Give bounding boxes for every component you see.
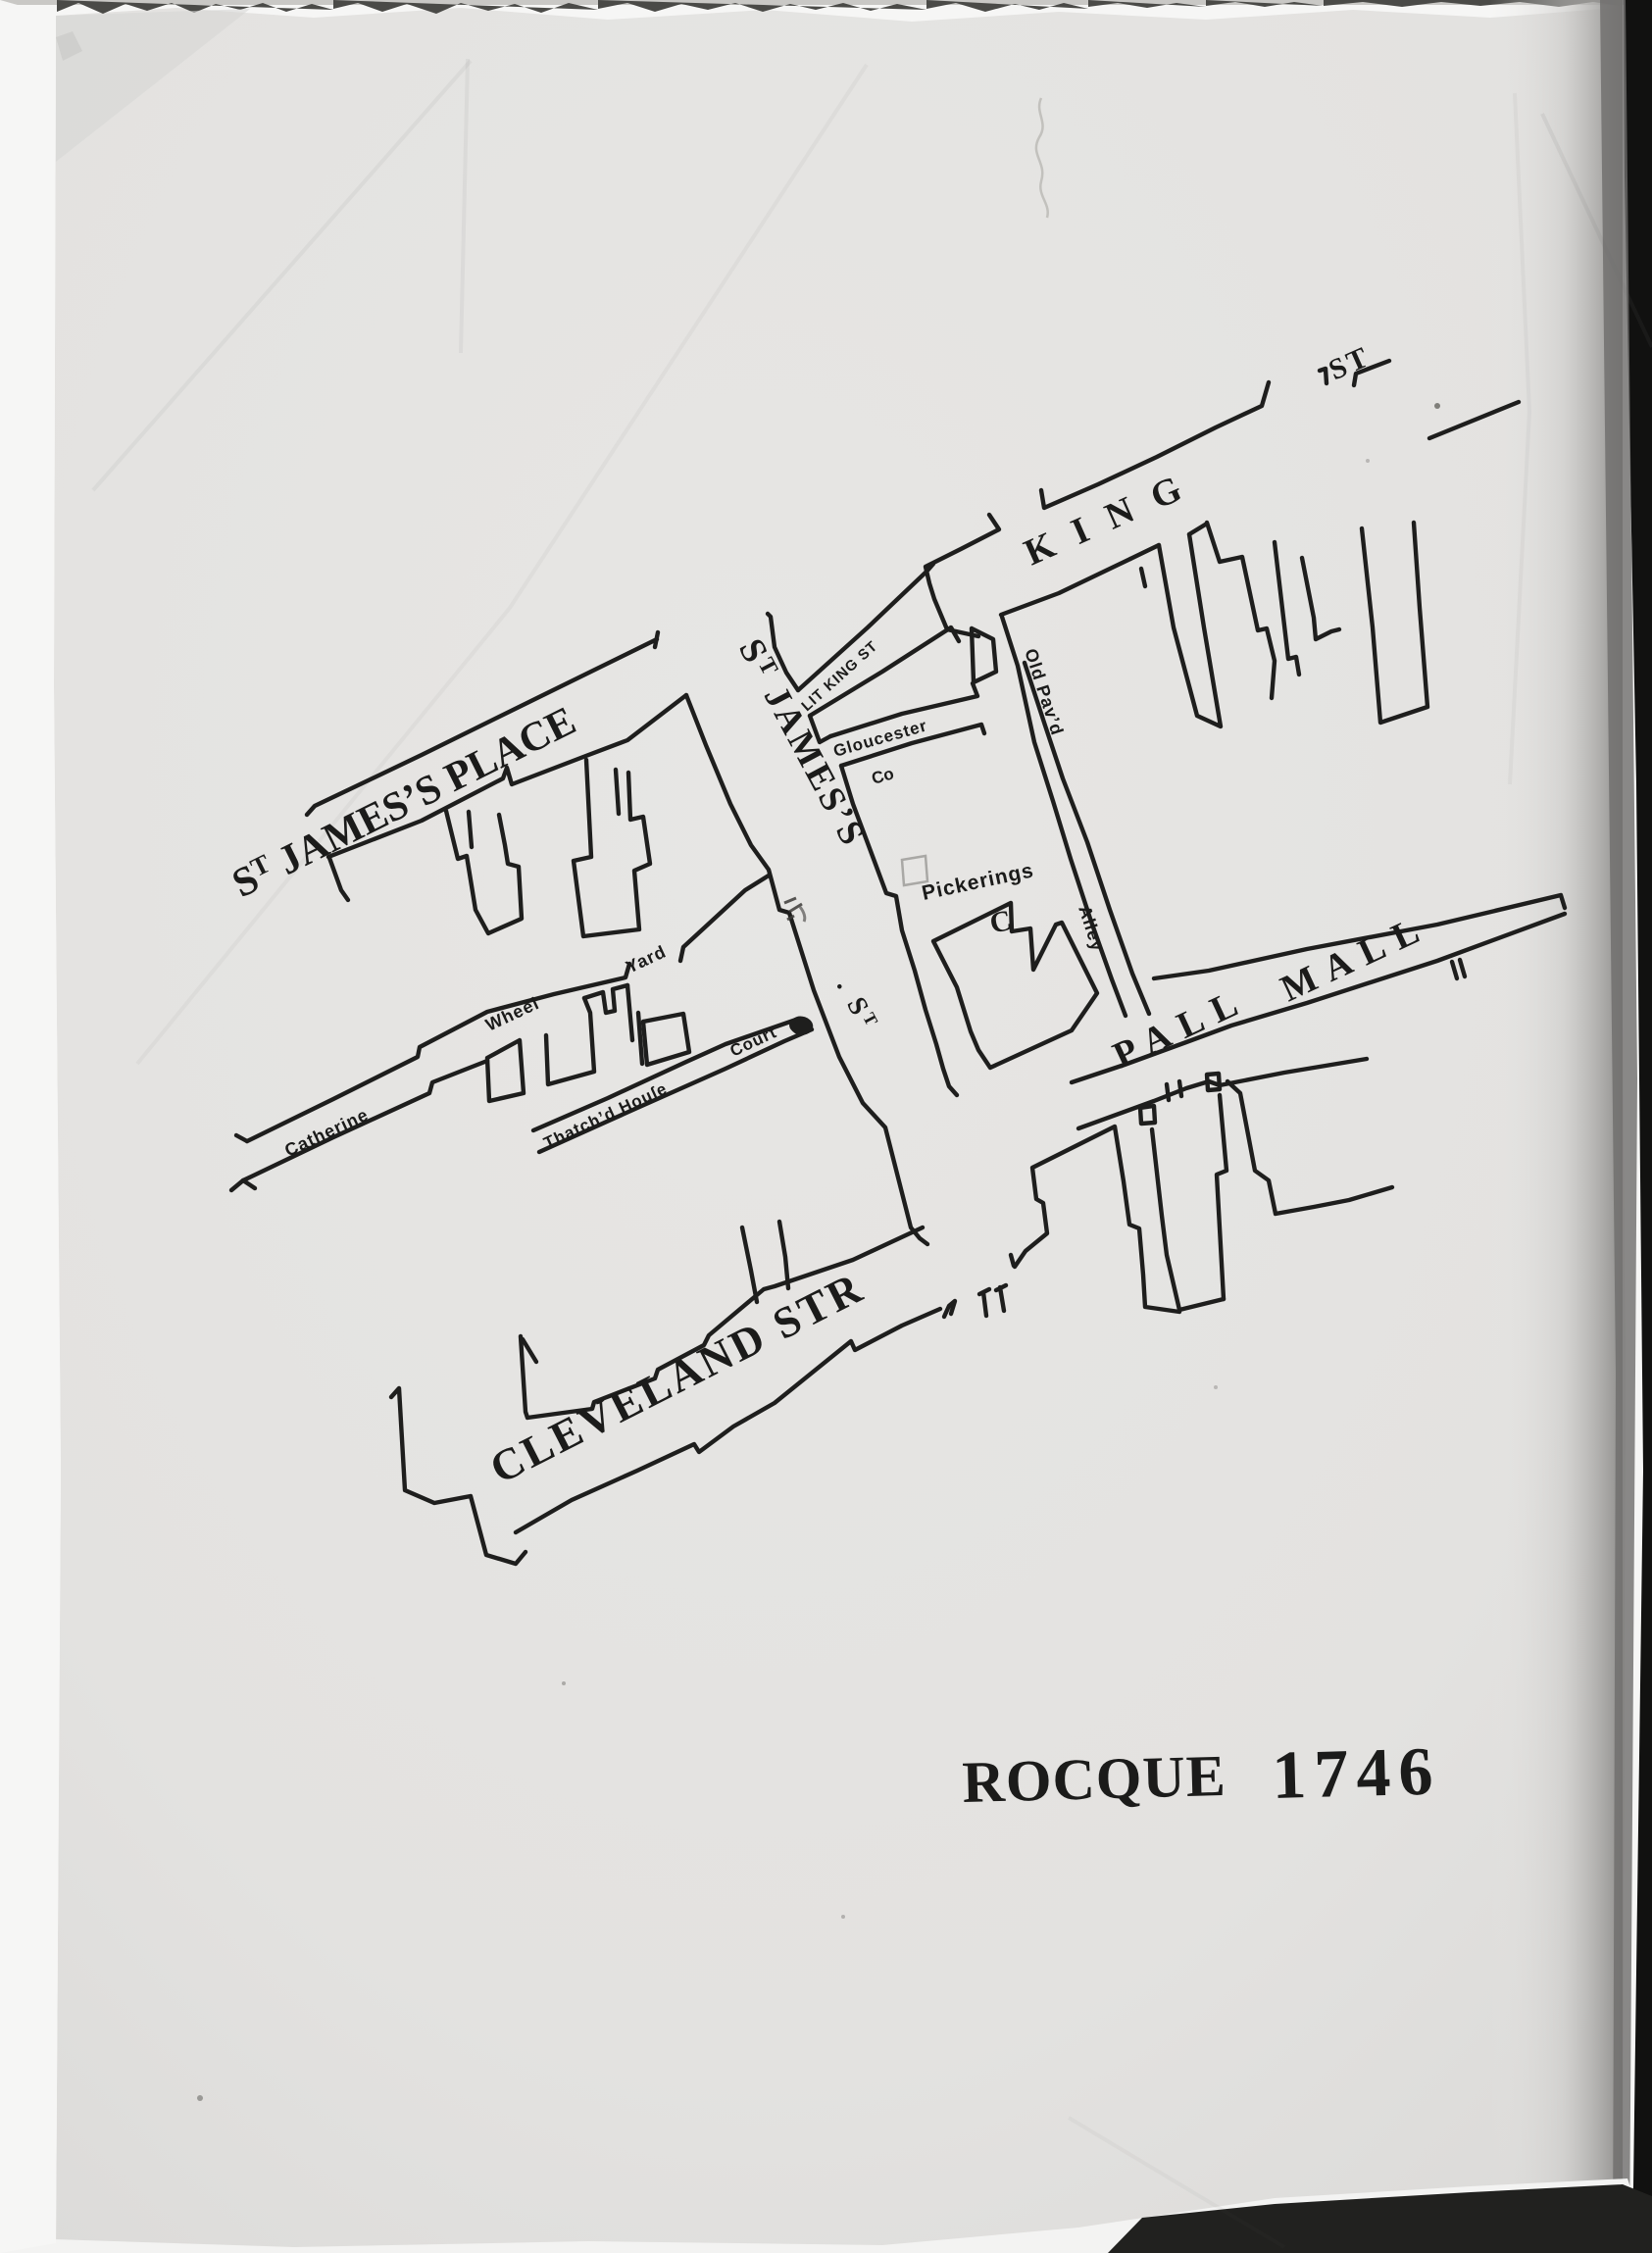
svg-text:ROCQUE: ROCQUE	[962, 1743, 1227, 1815]
svg-text:1746: 1746	[1271, 1734, 1441, 1814]
